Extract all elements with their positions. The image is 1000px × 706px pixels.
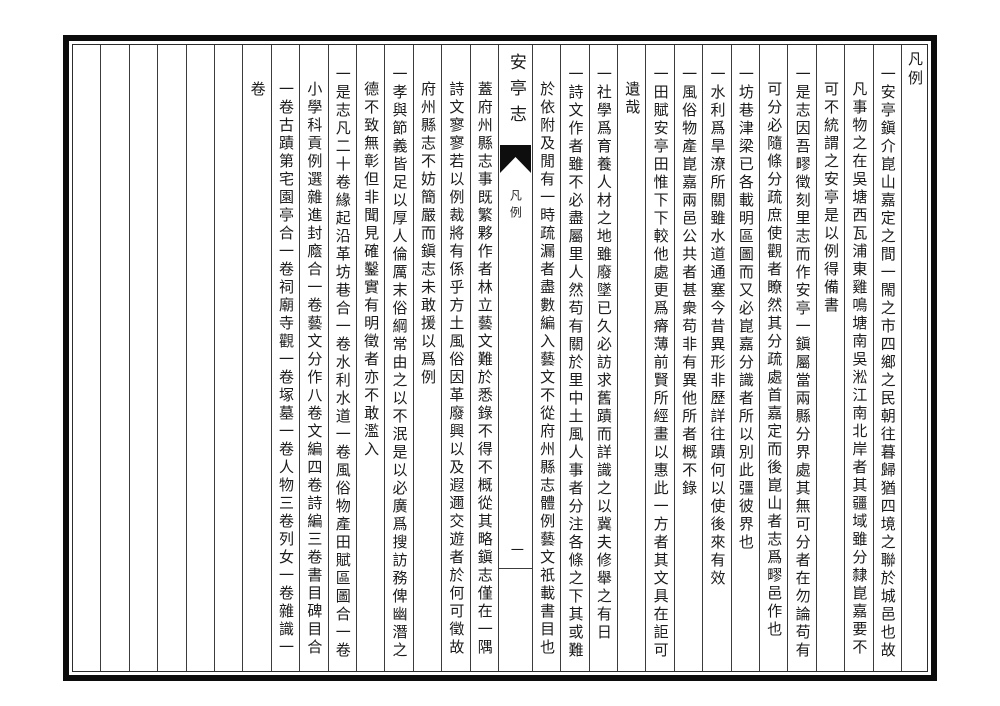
column-text: 一社學爲育養人材之地雖廢墜已久必訪求舊蹟而詳識之以冀夫修舉之有日	[596, 45, 611, 671]
text-column: 一是志凡二十卷緣起沿革坊巷合一卷水利水道一卷風俗物產田賦區圖合一卷	[328, 45, 356, 671]
text-column: 一田賦安亭田惟下下較他處更爲瘠薄前賢所經畫以惠此一方者其文具在詎可	[645, 45, 673, 671]
text-column: 遺哉	[617, 45, 645, 671]
section-header-column: 凡例	[901, 45, 927, 671]
column-text: 一是志因吾疁徵刻里志而作安亭一鎭屬當兩縣分界處其無可分者在勿論苟有	[795, 45, 810, 671]
page-border-frame: 凡例 一安亭鎭介崑山嘉定之間一閙之市四鄉之民朝往暮歸猶四境之聯於城邑也故 凡事物…	[63, 35, 937, 681]
column-text: 一卷古蹟第宅園亭合一卷祠廟寺觀一卷塚墓一卷人物三卷列女一卷雜識一	[278, 45, 293, 671]
column-text: 一孝與節義皆足以厚人倫厲末俗綱常由之以不泯是以必廣爲搜訪務俾幽潛之	[392, 45, 407, 671]
banxin-column: 安亭志 凡例 一	[498, 45, 532, 671]
column-text: 凡事物之在吳塘西瓦浦東雞鳴塘南吳淞江南北岸者其疆域雖分隸崑嘉要不	[851, 45, 866, 671]
text-column: 一卷古蹟第宅園亭合一卷祠廟寺觀一卷塚墓一卷人物三卷列女一卷雜識一	[271, 45, 299, 671]
empty-column	[129, 45, 157, 671]
text-column: 一社學爲育養人材之地雖廢墜已久必訪求舊蹟而詳識之以冀夫修舉之有日	[589, 45, 617, 671]
column-text: 一是志凡二十卷緣起沿革坊巷合一卷水利水道一卷風俗物產田賦區圖合一卷	[335, 45, 350, 671]
text-column: 詩文寥寥若以例裁將有係乎方土風俗因革廢興以及遐邇交遊者於何可徵故	[441, 45, 469, 671]
empty-column	[100, 45, 128, 671]
column-text: 可不統謂之安亭是以例得備書	[823, 45, 838, 671]
banxin-divider	[499, 568, 532, 569]
column-text: 可分必隨條分疏庶使觀者瞭然其分疏處首嘉定而後崑山者志爲疁邑作也	[766, 45, 781, 671]
column-text: 一風俗物產崑嘉兩邑公共者甚衆苟非有異他所者概不錄	[681, 45, 696, 671]
text-column: 卷	[242, 45, 270, 671]
text-column: 一坊巷津梁已各載明區圖而又必崑嘉分識者所以別此彊彼界也	[731, 45, 759, 671]
text-column: 一風俗物產崑嘉兩邑公共者甚衆苟非有異他所者概不錄	[674, 45, 702, 671]
column-text: 卷	[250, 45, 265, 671]
text-column: 於依附及閒有一時疏漏者盡數編入藝文不從府州縣志體例藝文祇載書目也	[532, 45, 560, 671]
column-text: 詩文寥寥若以例裁將有係乎方土風俗因革廢興以及遐邇交遊者於何可徵故	[448, 45, 463, 671]
column-text: 於依附及閒有一時疏漏者盡數編入藝文不從府州縣志體例藝文祇載書目也	[539, 45, 554, 671]
banxin-section-label: 凡例	[509, 189, 521, 223]
page-number: 一	[509, 543, 522, 556]
text-column: 凡事物之在吳塘西瓦浦東雞鳴塘南吳淞江南北岸者其疆域雖分隸崑嘉要不	[844, 45, 872, 671]
column-text: 一坊巷津梁已各載明區圖而又必崑嘉分識者所以別此彊彼界也	[738, 45, 753, 671]
column-text: 一田賦安亭田惟下下較他處更爲瘠薄前賢所經畫以惠此一方者其文具在詎可	[653, 45, 668, 671]
column-text: 遺哉	[624, 45, 639, 671]
text-column: 德不致無彰但非聞見確鑿實有明徵者亦不敢濫入	[356, 45, 384, 671]
empty-column	[157, 45, 185, 671]
column-text: 一水利爲旱潦所關雖水道通塞今昔異形非歷詳往蹟何以使後來有效	[709, 45, 724, 671]
text-column: 府州縣志不妨簡嚴而鎭志未敢援以爲例	[413, 45, 441, 671]
empty-column	[214, 45, 242, 671]
text-column: 一詩文作者雖不必盡屬里人然苟有關於里中土風人事者分注各條之下其或難	[560, 45, 588, 671]
text-column: 一是志因吾疁徵刻里志而作安亭一鎭屬當兩縣分界處其無可分者在勿論苟有	[787, 45, 815, 671]
column-text: 一安亭鎭介崑山嘉定之間一閙之市四鄉之民朝往暮歸猶四境之聯於城邑也故	[880, 45, 895, 671]
column-text: 府州縣志不妨簡嚴而鎭志未敢援以爲例	[420, 45, 435, 671]
scanned-book-page: 凡例 一安亭鎭介崑山嘉定之間一閙之市四鄉之民朝往暮歸猶四境之聯於城邑也故 凡事物…	[0, 0, 1000, 706]
empty-column	[73, 45, 100, 671]
text-column: 一安亭鎭介崑山嘉定之間一閙之市四鄉之民朝往暮歸猶四境之聯於城邑也故	[873, 45, 901, 671]
column-text: 小學科貢例選雜進封廕合一卷藝文分作八卷文編四卷詩編三卷書目碑目合	[306, 45, 321, 671]
text-column: 蓋府州縣志事既繁夥作者林立藝文難於悉錄不得不概從其略鎭志僅在一隅	[470, 45, 498, 671]
empty-column	[186, 45, 214, 671]
column-text: 德不致無彰但非聞見確鑿實有明徵者亦不敢濫入	[363, 45, 378, 671]
book-title: 安亭志	[507, 53, 524, 131]
text-column: 一水利爲旱潦所關雖水道通塞今昔異形非歷詳往蹟何以使後來有效	[702, 45, 730, 671]
text-column: 可分必隨條分疏庶使觀者瞭然其分疏處首嘉定而後崑山者志爲疁邑作也	[759, 45, 787, 671]
text-grid: 凡例 一安亭鎭介崑山嘉定之間一閙之市四鄉之民朝往暮歸猶四境之聯於城邑也故 凡事物…	[72, 44, 928, 672]
column-text: 蓋府州縣志事既繁夥作者林立藝文難於悉錄不得不概從其略鎭志僅在一隅	[477, 45, 492, 671]
text-column: 可不統謂之安亭是以例得備書	[816, 45, 844, 671]
fishtail-icon	[500, 145, 531, 175]
column-text: 一詩文作者雖不必盡屬里人然苟有關於里中土風人事者分注各條之下其或難	[568, 45, 583, 671]
section-header-label: 凡例	[907, 45, 922, 671]
text-column: 一孝與節義皆足以厚人倫厲末俗綱常由之以不泯是以必廣爲搜訪務俾幽潛之	[384, 45, 412, 671]
text-column: 小學科貢例選雜進封廕合一卷藝文分作八卷文編四卷詩編三卷書目碑目合	[299, 45, 327, 671]
